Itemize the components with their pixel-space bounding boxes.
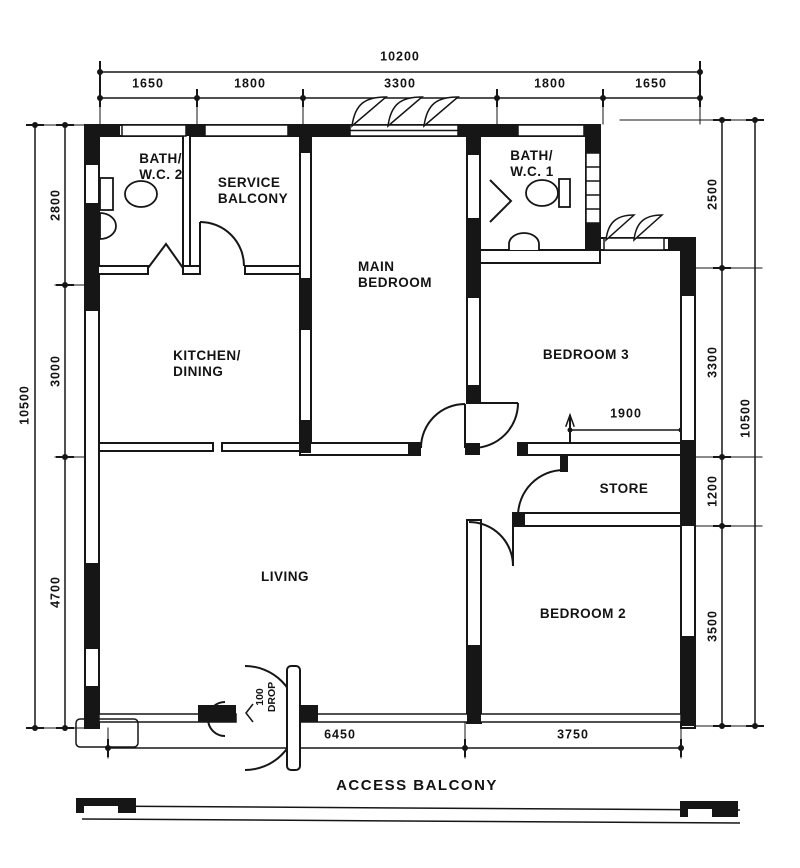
room-label-kitchen-dining: KITCHEN/ DINING — [173, 348, 241, 380]
dim-right-segment: 2500 — [706, 178, 721, 210]
room-label-line: DINING — [173, 364, 241, 380]
bifold-door-icon — [490, 180, 511, 222]
dim-left-segment: 4700 — [49, 576, 64, 608]
room-label-bedroom-3: BEDROOM 3 — [543, 347, 629, 363]
walls — [85, 125, 695, 728]
room-label-line: SERVICE — [218, 175, 288, 191]
toilet-icon — [526, 179, 570, 207]
bifold-door-icon — [148, 244, 183, 268]
dimension-lines — [27, 62, 763, 758]
room-label-line: BATH/ — [139, 151, 183, 167]
floor-plan-drawing — [0, 0, 800, 868]
floor-plan: BATH/ W.C. 2 SERVICE BALCONY MAIN BEDROO… — [0, 0, 800, 868]
door-arc — [200, 222, 244, 266]
dim-left-segment: 2800 — [49, 189, 64, 221]
room-label-main-bedroom: MAIN BEDROOM — [358, 259, 432, 291]
door-arc — [518, 470, 564, 516]
room-label-bedroom-2: BEDROOM 2 — [540, 606, 626, 622]
windows — [122, 97, 664, 250]
dim-top-segment: 3300 — [384, 77, 416, 92]
basin-icon — [509, 233, 539, 250]
dim-top-segment: 1650 — [635, 77, 667, 92]
access-balcony-label: ACCESS BALCONY — [336, 777, 498, 795]
dim-store-clearance: 1900 — [610, 407, 642, 422]
dim-right-overall: 10500 — [739, 398, 754, 438]
casement-window-icon — [352, 97, 662, 240]
room-label-line: MAIN — [358, 259, 432, 275]
dim-top-segment: 1800 — [234, 77, 266, 92]
dim-bottom-segment: 6450 — [324, 728, 356, 743]
entrance-drop-line: 100 — [254, 682, 266, 712]
room-label-bath-wc-1: BATH/ W.C. 1 — [510, 148, 554, 180]
door-arc — [473, 403, 518, 448]
room-label-line: W.C. 2 — [139, 167, 183, 183]
room-label-line: BEDROOM — [358, 275, 432, 291]
room-label-bath-wc-2: BATH/ W.C. 2 — [139, 151, 183, 183]
room-label-service-balcony: SERVICE BALCONY — [218, 175, 288, 207]
columns — [85, 125, 695, 728]
room-label-line: KITCHEN/ — [173, 348, 241, 364]
access-balcony-strip — [76, 719, 740, 823]
dim-left-overall: 10500 — [18, 385, 33, 425]
dim-right-segment: 3500 — [706, 610, 721, 642]
entrance-door-leaf — [287, 666, 300, 770]
dim-top-overall: 10200 — [380, 50, 420, 65]
dim-left-segment: 3000 — [49, 355, 64, 387]
entrance-drop-label: 100 DROP — [254, 682, 278, 712]
drop-arrow-icon — [246, 704, 253, 722]
entrance-drop-line: DROP — [266, 682, 278, 712]
dim-top-segment: 1650 — [132, 77, 164, 92]
dim-right-segment: 3300 — [706, 346, 721, 378]
room-label-line: BALCONY — [218, 191, 288, 207]
door-arc — [421, 404, 465, 448]
doors — [148, 180, 564, 770]
dim-bottom-segment: 3750 — [557, 728, 589, 743]
room-label-line: W.C. 1 — [510, 164, 554, 180]
room-label-store: STORE — [600, 481, 649, 497]
basin-icon — [100, 213, 116, 239]
room-label-line: BATH/ — [510, 148, 554, 164]
dim-right-segment: 1200 — [706, 475, 721, 507]
room-label-living: LIVING — [261, 569, 309, 585]
dim-top-segment: 1800 — [534, 77, 566, 92]
